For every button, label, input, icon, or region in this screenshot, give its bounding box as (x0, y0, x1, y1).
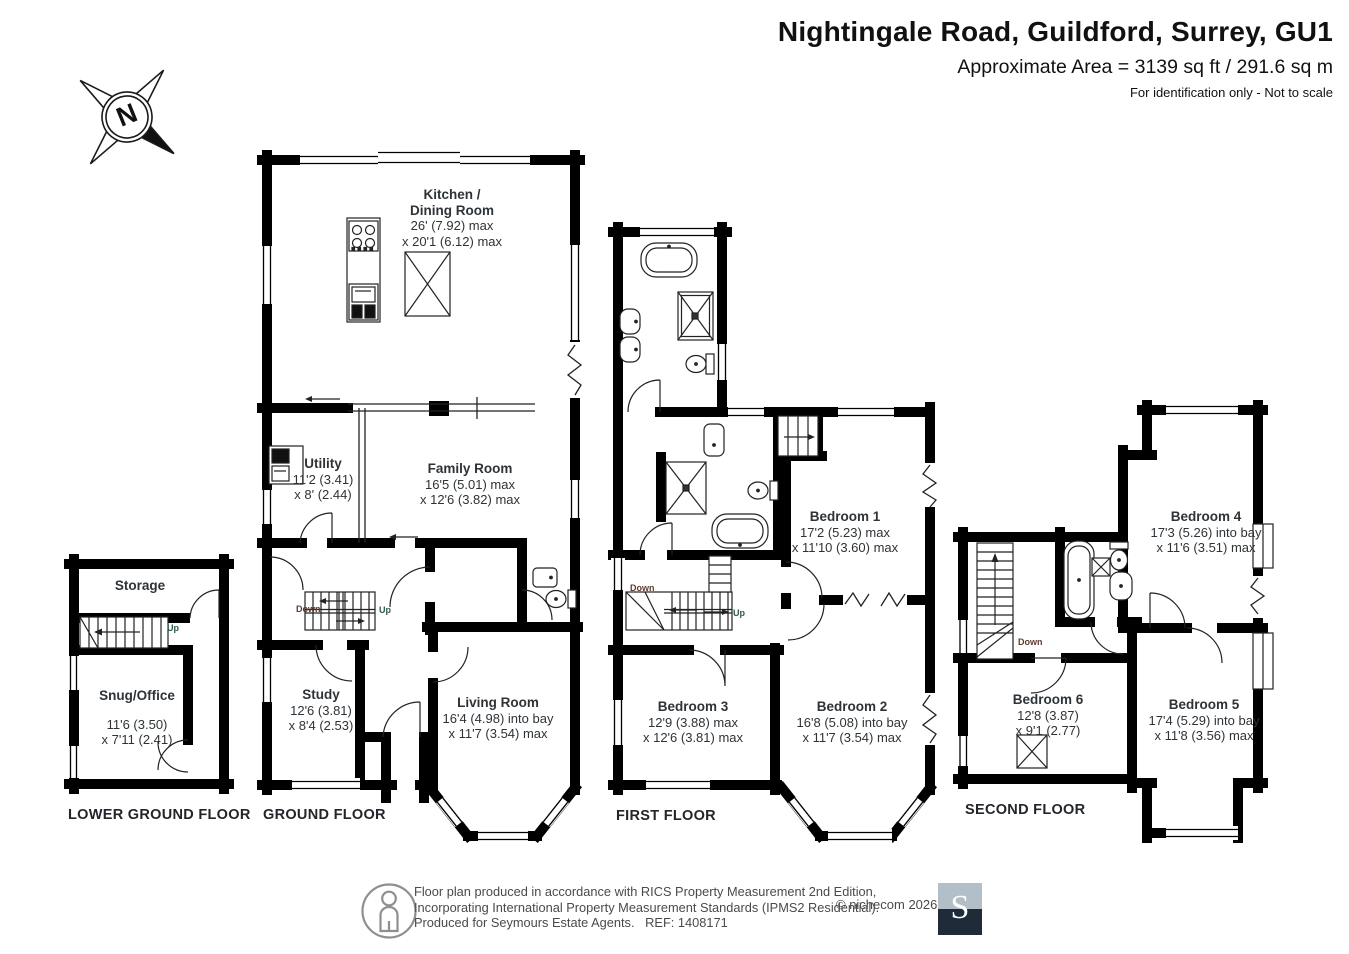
person-icon (363, 885, 416, 938)
room-label-bedroom6: Bedroom 6 12'8 (3.87) x 9'1 (2.77) (1013, 692, 1084, 739)
floor-label-first: FIRST FLOOR (616, 808, 716, 824)
area-line: Approximate Area = 3139 sq ft / 291.6 sq… (778, 56, 1333, 79)
room-label-family-room: Family Room 16'5 (5.01) max x 12'6 (3.82… (420, 461, 520, 508)
floor-label-ground: GROUND FLOOR (263, 807, 386, 823)
page-title: Nightingale Road, Guildford, Surrey, GU1 (778, 16, 1333, 48)
header: Nightingale Road, Guildford, Surrey, GU1… (778, 16, 1333, 100)
lower-ground-stairs (80, 617, 168, 648)
seymours-logo: S (938, 883, 982, 935)
room-label-storage: Storage (115, 578, 165, 594)
room-label-bedroom5: Bedroom 5 17'4 (5.29) into bay x 11'8 (3… (1149, 697, 1260, 744)
second-floor-stairs (977, 543, 1013, 659)
first-floor-ensuite (666, 424, 778, 548)
kitchen-counter (347, 218, 380, 322)
scale-note: For identification only - Not to scale (778, 85, 1333, 100)
stairs-down-label-ground: Down (296, 604, 321, 614)
stairs-up-label-first: Up (733, 608, 745, 618)
room-label-snug-office: Snug/Office 11'6 (3.50) x 7'11 (2.41) (99, 688, 175, 748)
kitchen-table (405, 252, 450, 316)
bedroom6-skylight (1017, 735, 1047, 768)
room-label-bedroom4: Bedroom 4 17'3 (5.26) into bay x 11'6 (3… (1151, 509, 1262, 556)
room-label-bedroom2: Bedroom 2 16'8 (5.08) into bay x 11'7 (3… (797, 699, 908, 746)
copyright-text: © nichecom 2026. (836, 897, 941, 912)
first-floor-bathroom (620, 243, 714, 374)
room-label-bedroom3: Bedroom 3 12'9 (3.88) max x 12'6 (3.81) … (643, 699, 743, 746)
room-label-study: Study 12'6 (3.81) x 8'4 (2.53) (289, 687, 354, 734)
room-label-kitchen: Kitchen / Dining Room 26' (7.92) max x 2… (402, 187, 502, 249)
stairs-down-label-first: Down (630, 583, 655, 593)
floor-label-lower-ground: LOWER GROUND FLOOR (68, 807, 251, 823)
stairs-up-label-ground: Up (379, 605, 391, 615)
wc-fixtures (533, 568, 576, 608)
lower-ground-floor-plan (67, 559, 229, 789)
stairs-down-label-second: Down (1018, 637, 1043, 647)
stairs-up-label-lower-ground: Up (167, 623, 179, 633)
room-label-utility: Utility 11'2 (3.41) x 8' (2.44) (293, 456, 354, 503)
room-label-living-room: Living Room 16'4 (4.98) into bay x 11'7 … (443, 695, 554, 742)
second-floor-plan (957, 403, 1273, 840)
floor-label-second: SECOND FLOOR (965, 802, 1085, 818)
floorplan-page: Nightingale Road, Guildford, Surrey, GU1… (0, 0, 1349, 954)
footer-disclaimer: Floor plan produced in accordance with R… (414, 884, 879, 931)
room-label-bedroom1: Bedroom 1 17'2 (5.23) max x 11'10 (3.60)… (792, 509, 898, 556)
